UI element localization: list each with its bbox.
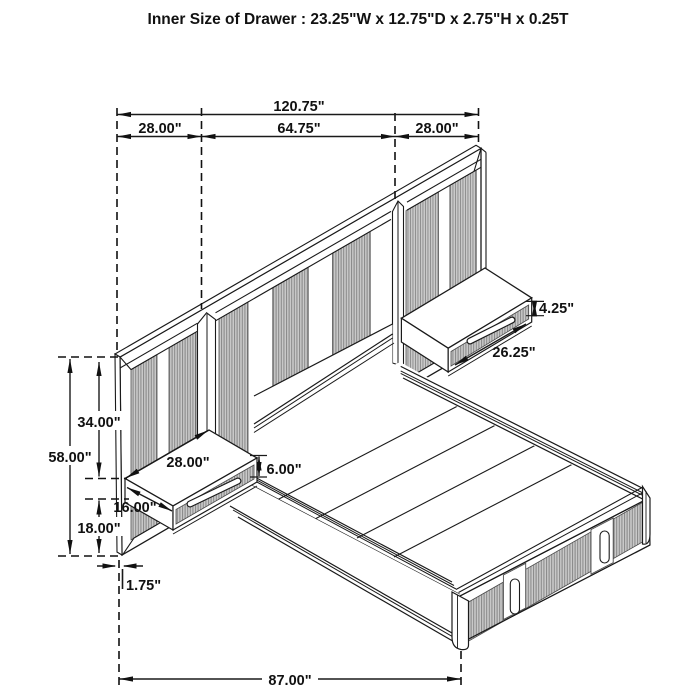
svg-text:64.75": 64.75" <box>277 121 320 137</box>
svg-text:1.75": 1.75" <box>126 578 161 594</box>
svg-text:28.00": 28.00" <box>166 455 209 471</box>
svg-text:16.00": 16.00" <box>113 500 156 516</box>
svg-text:34.00": 34.00" <box>77 415 120 431</box>
svg-text:Inner Size of Drawer : 23.25"W: Inner Size of Drawer : 23.25"W x 12.75"D… <box>148 11 569 28</box>
svg-text:28.00": 28.00" <box>138 121 181 137</box>
svg-text:120.75": 120.75" <box>273 99 324 115</box>
svg-text:87.00": 87.00" <box>268 673 311 689</box>
svg-text:28.00": 28.00" <box>415 121 458 137</box>
svg-text:18.00": 18.00" <box>77 521 120 537</box>
svg-text:26.25": 26.25" <box>492 345 535 361</box>
svg-text:4.25": 4.25" <box>539 301 574 317</box>
svg-text:6.00": 6.00" <box>267 462 302 478</box>
svg-text:58.00": 58.00" <box>48 450 91 466</box>
